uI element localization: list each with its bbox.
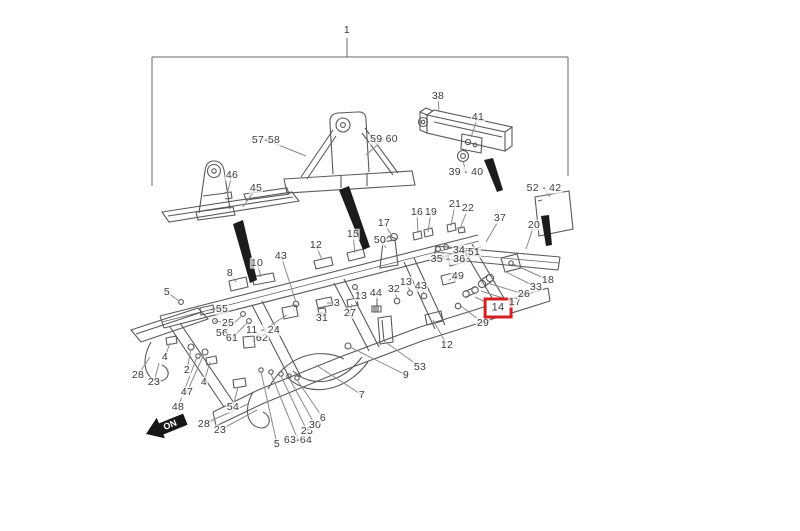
chassis-frame: [131, 223, 560, 428]
leader-line: [227, 175, 232, 194]
leader-line: [232, 322, 248, 338]
leader-line: [138, 357, 150, 375]
leader-line: [487, 283, 524, 294]
leader-line: [486, 218, 500, 242]
leader-line: [394, 289, 397, 299]
leader-line: [438, 96, 439, 112]
plate-part: [535, 191, 573, 236]
leader-line: [471, 117, 478, 137]
leader-line: [220, 410, 257, 430]
leader-line: [154, 363, 159, 382]
frame-line-art: ON: [0, 0, 800, 531]
leader-line: [167, 292, 179, 301]
leader-line: [257, 263, 261, 277]
parts-diagram: ON 1384139 - 4057-5859 6052 - 4246451619…: [0, 0, 800, 531]
leader-line: [460, 208, 468, 229]
leader-line: [463, 161, 466, 172]
mount-bracket-assembly: [284, 112, 415, 193]
direction-arrow-icon: ON: [142, 408, 189, 444]
leader-line: [356, 288, 361, 296]
leader-line: [233, 387, 238, 407]
leader-line: [481, 291, 515, 302]
leader-line: [384, 223, 392, 236]
leader-line: [353, 234, 355, 253]
leader-line: [266, 140, 306, 156]
leader-line: [504, 271, 536, 287]
leader-line: [281, 256, 296, 302]
rear-mount-bracket-assembly: [419, 108, 513, 162]
leader-line: [350, 304, 352, 313]
leader-line: [526, 225, 534, 249]
leader-line: [178, 357, 197, 407]
leader-line: [406, 282, 410, 291]
leader-line: [316, 245, 322, 260]
leader-lines: [138, 96, 550, 444]
leader-line: [384, 341, 420, 367]
leader-line: [417, 212, 418, 233]
leader-line: [421, 286, 424, 294]
engine-mount-assembly: [162, 161, 299, 222]
leader-line: [376, 293, 377, 303]
leader-line: [316, 365, 362, 395]
leader-line: [321, 312, 322, 318]
leader-line: [263, 315, 287, 330]
